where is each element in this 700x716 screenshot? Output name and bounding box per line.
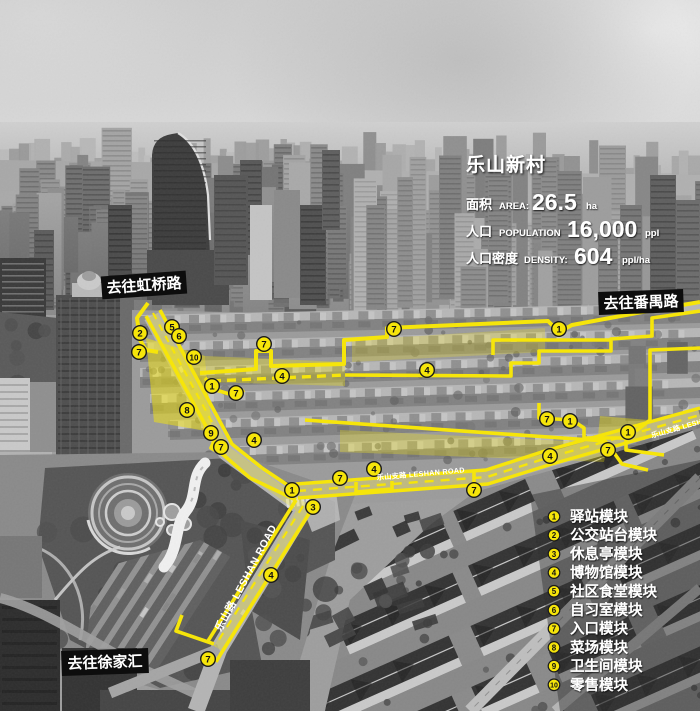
svg-text:面积: 面积 xyxy=(466,197,492,212)
svg-text:9: 9 xyxy=(552,662,557,671)
svg-text:自习室模块: 自习室模块 xyxy=(570,601,643,619)
svg-text:驿站模块: 驿站模块 xyxy=(570,508,628,526)
svg-text:卫生间模块: 卫生间模块 xyxy=(570,657,643,675)
svg-text:16,000: 16,000 xyxy=(567,216,637,242)
svg-text:1: 1 xyxy=(556,324,562,335)
svg-text:博物馆模块: 博物馆模块 xyxy=(570,564,643,582)
svg-text:5: 5 xyxy=(552,587,557,596)
svg-text:6: 6 xyxy=(552,606,557,615)
svg-text:乐山新村: 乐山新村 xyxy=(466,153,546,176)
svg-text:2: 2 xyxy=(552,531,557,540)
svg-text:人口: 人口 xyxy=(466,224,492,239)
svg-text:菜场模块: 菜场模块 xyxy=(569,638,628,656)
svg-text:7: 7 xyxy=(552,625,557,634)
svg-text:1: 1 xyxy=(552,512,557,521)
svg-text:入口模块: 入口模块 xyxy=(570,620,628,638)
svg-text:8: 8 xyxy=(552,643,557,652)
svg-text:零售模块: 零售模块 xyxy=(569,676,628,694)
svg-text:7: 7 xyxy=(261,339,266,350)
svg-text:DENSITY:: DENSITY: xyxy=(524,255,568,266)
svg-text:POPULATION: POPULATION xyxy=(499,228,561,239)
svg-text:3: 3 xyxy=(310,502,315,513)
svg-text:6: 6 xyxy=(176,331,181,342)
svg-text:7: 7 xyxy=(471,485,476,496)
svg-text:4: 4 xyxy=(424,365,430,376)
svg-text:7: 7 xyxy=(205,654,210,665)
svg-text:1: 1 xyxy=(289,485,295,496)
svg-text:2: 2 xyxy=(137,328,142,339)
svg-text:4: 4 xyxy=(268,570,274,581)
svg-text:9: 9 xyxy=(208,428,213,439)
svg-text:1: 1 xyxy=(625,427,631,438)
svg-text:7: 7 xyxy=(233,388,238,399)
svg-text:3: 3 xyxy=(552,550,557,559)
svg-text:去往番禺路: 去往番禺路 xyxy=(603,292,680,313)
svg-text:26.5: 26.5 xyxy=(532,189,577,215)
svg-text:7: 7 xyxy=(337,473,342,484)
svg-text:7: 7 xyxy=(391,324,396,335)
svg-text:公交站台模块: 公交站台模块 xyxy=(570,526,657,544)
svg-text:10: 10 xyxy=(550,683,558,690)
svg-text:ppl/ha: ppl/ha xyxy=(622,255,651,266)
svg-text:社区食堂模块: 社区食堂模块 xyxy=(569,582,657,600)
svg-text:去往徐家汇: 去往徐家汇 xyxy=(67,652,143,673)
svg-text:7: 7 xyxy=(218,442,223,453)
svg-text:604: 604 xyxy=(574,243,613,269)
svg-text:ppl: ppl xyxy=(645,228,659,239)
svg-text:4: 4 xyxy=(547,451,553,462)
svg-text:4: 4 xyxy=(251,435,257,446)
svg-text:4: 4 xyxy=(279,371,285,382)
svg-text:7: 7 xyxy=(544,414,549,425)
svg-text:人口密度: 人口密度 xyxy=(466,251,519,266)
svg-text:8: 8 xyxy=(184,405,189,416)
svg-text:1: 1 xyxy=(567,416,573,427)
svg-text:10: 10 xyxy=(190,353,199,362)
svg-text:7: 7 xyxy=(605,445,610,456)
svg-text:休息亭模块: 休息亭模块 xyxy=(569,545,643,563)
svg-text:7: 7 xyxy=(136,347,141,358)
svg-text:ha: ha xyxy=(586,201,598,212)
svg-text:1: 1 xyxy=(209,381,215,392)
svg-text:AREA:: AREA: xyxy=(499,201,529,212)
svg-text:4: 4 xyxy=(552,569,557,578)
